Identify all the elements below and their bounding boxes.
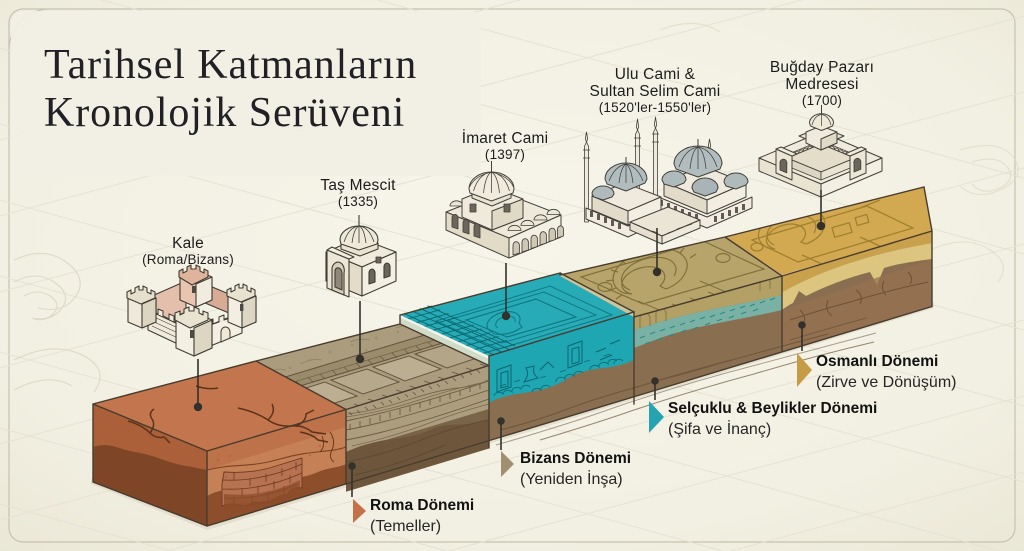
svg-text:(1397): (1397) [485,147,525,162]
svg-text:Medresesi: Medresesi [785,76,858,93]
svg-text:(1700): (1700) [802,93,842,108]
svg-text:(Zirve ve Dönüşüm): (Zirve ve Dönüşüm) [816,374,956,391]
svg-text:(Yeniden İnşa): (Yeniden İnşa) [520,469,623,488]
svg-text:İmaret Cami: İmaret Cami [462,129,549,147]
svg-text:(Temeller): (Temeller) [370,518,441,535]
svg-text:(1520'ler-1550'ler): (1520'ler-1550'ler) [599,100,712,115]
svg-text:Kale: Kale [172,235,204,252]
svg-text:(Şifa ve İnanç): (Şifa ve İnanç) [668,419,771,438]
svg-text:Osmanlı Dönemi: Osmanlı Dönemi [816,353,938,370]
svg-text:Kronolojik Serüveni: Kronolojik Serüveni [44,90,405,136]
svg-text:(Roma/Bizans): (Roma/Bizans) [142,252,234,267]
svg-text:Bizans Dönemi: Bizans Dönemi [520,450,631,467]
svg-text:Selçuklu & Beylikler Dönemi: Selçuklu & Beylikler Dönemi [668,400,877,417]
svg-text:Buğday Pazarı: Buğday Pazarı [770,59,874,76]
svg-text:Sultan Selim Cami: Sultan Selim Cami [590,83,721,100]
svg-text:(1335): (1335) [338,194,378,209]
svg-text:Ulu Cami &: Ulu Cami & [615,66,696,83]
svg-text:Tarihsel Katmanların: Tarihsel Katmanların [44,42,417,88]
svg-text:Roma Dönemi: Roma Dönemi [370,497,474,514]
svg-text:Taş Mescit: Taş Mescit [320,177,396,194]
